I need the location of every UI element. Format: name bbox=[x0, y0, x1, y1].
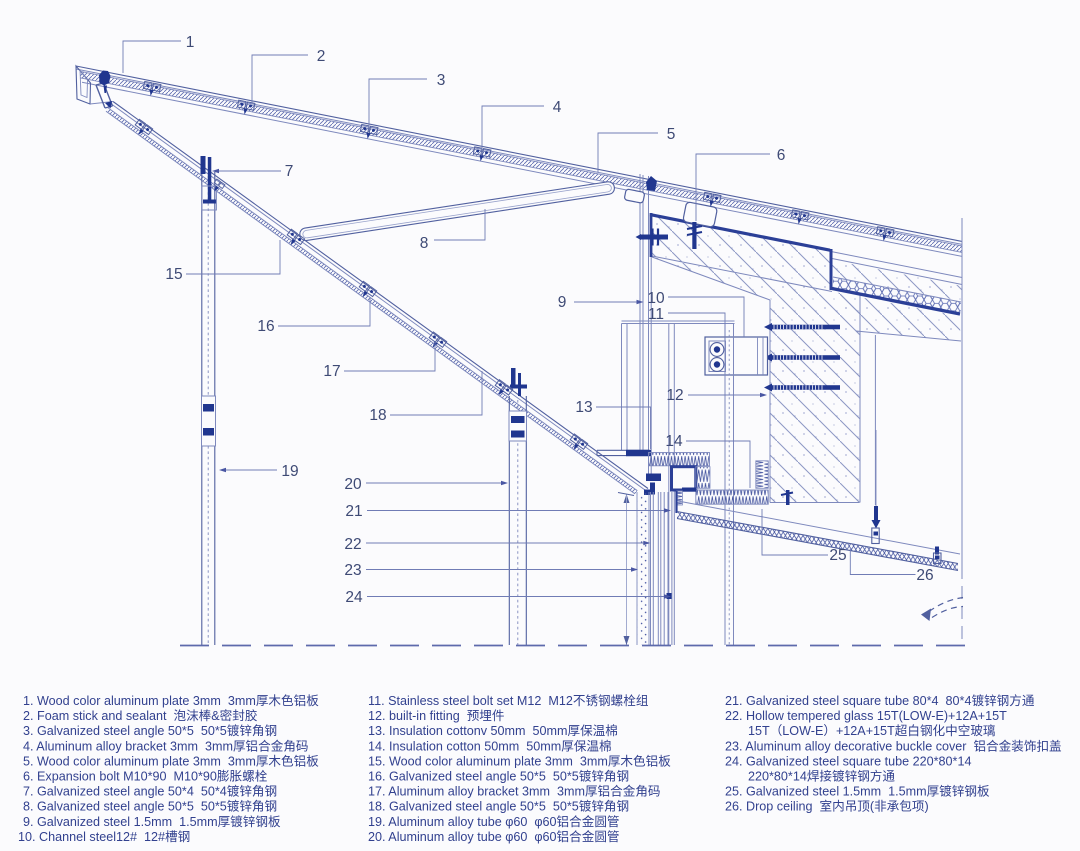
svg-text:12. built-in fitting 预埋件: 12. built-in fitting 预埋件 bbox=[368, 709, 504, 723]
svg-text:7. Galvanized steel angle 50*4: 7. Galvanized steel angle 50*4 50*4镀锌角钢 bbox=[23, 784, 277, 799]
svg-text:22: 22 bbox=[344, 536, 361, 553]
svg-text:9: 9 bbox=[558, 294, 567, 311]
svg-text:16. Galvanized steel angle 50*: 16. Galvanized steel angle 50*5 50*5镀锌角钢 bbox=[368, 769, 629, 784]
svg-text:24. Galvanized steel square tu: 24. Galvanized steel square tube 220*80*… bbox=[725, 754, 971, 768]
svg-text:13: 13 bbox=[575, 399, 592, 416]
svg-text:6. Expansion bolt M10*90 M10*: 6. Expansion bolt M10*90 M10*90膨胀螺栓 bbox=[23, 770, 268, 784]
svg-text:8. Galvanized steel angle 50*5: 8. Galvanized steel angle 50*5 50*5镀锌角钢 bbox=[23, 799, 277, 814]
svg-text:24: 24 bbox=[345, 589, 363, 606]
svg-text:21: 21 bbox=[345, 503, 362, 520]
svg-text:3: 3 bbox=[437, 72, 446, 89]
svg-text:13. Insulation cottonv 50mm 5: 13. Insulation cottonv 50mm 50mm厚保温棉 bbox=[368, 724, 618, 738]
svg-text:11: 11 bbox=[648, 306, 664, 323]
svg-text:2. Foam stick and sealant 泡沫棒: 2. Foam stick and sealant 泡沫棒&密封胶 bbox=[23, 708, 258, 723]
svg-text:20. Aluminum alloy tube φ60 φ: 20. Aluminum alloy tube φ60 φ60铝合金圆管 bbox=[368, 829, 620, 844]
svg-text:4. Aluminum alloy bracket 3mm: 4. Aluminum alloy bracket 3mm 3mm厚铝合金角码 bbox=[23, 738, 309, 753]
svg-text:19. Aluminum alloy tube φ60 φ: 19. Aluminum alloy tube φ60 φ60铝合金圆管 bbox=[368, 814, 620, 829]
svg-text:16: 16 bbox=[257, 318, 274, 335]
svg-text:23. Aluminum alloy decorative: 23. Aluminum alloy decorative buckle cov… bbox=[725, 738, 1062, 753]
svg-text:17: 17 bbox=[323, 363, 340, 380]
svg-text:11. Stainless steel bolt set M: 11. Stainless steel bolt set M12 M12不锈钢螺… bbox=[368, 694, 649, 708]
svg-text:15T（LOW-E）+12A+15T超白钢化中空玻璃: 15T（LOW-E）+12A+15T超白钢化中空玻璃 bbox=[748, 723, 996, 738]
svg-text:10. Channel steel12# 12#槽钢: 10. Channel steel12# 12#槽钢 bbox=[18, 830, 190, 844]
svg-text:2: 2 bbox=[317, 48, 326, 65]
svg-text:18: 18 bbox=[369, 407, 386, 424]
svg-text:6: 6 bbox=[777, 147, 786, 164]
svg-text:8: 8 bbox=[420, 235, 429, 252]
svg-text:18. Galvanized steel angle 50*: 18. Galvanized steel angle 50*5 50*5镀锌角钢 bbox=[368, 799, 629, 814]
svg-text:25: 25 bbox=[829, 547, 846, 564]
svg-text:22. Hollow tempered glass 15T(: 22. Hollow tempered glass 15T(LOW-E)+12A… bbox=[725, 709, 1007, 723]
svg-text:15: 15 bbox=[165, 266, 182, 283]
svg-text:1: 1 bbox=[186, 34, 195, 51]
svg-text:12: 12 bbox=[666, 387, 683, 404]
svg-text:14. Insulation cotton 50mm 50: 14. Insulation cotton 50mm 50mm厚保温棉 bbox=[368, 739, 612, 753]
svg-text:4: 4 bbox=[553, 99, 562, 116]
svg-text:14: 14 bbox=[665, 433, 683, 450]
svg-text:15. Wood color aluminum plate: 15. Wood color aluminum plate 3mm 3mm厚木色… bbox=[368, 753, 671, 768]
svg-text:17. Aluminum alloy bracket 3mm: 17. Aluminum alloy bracket 3mm 3mm厚铝合金角码 bbox=[368, 784, 661, 799]
svg-text:23: 23 bbox=[344, 562, 361, 579]
svg-text:5. Wood color aluminum plate 3: 5. Wood color aluminum plate 3mm 3mm厚木色铝… bbox=[23, 753, 319, 768]
svg-text:26. Drop ceiling 室内吊顶(非承包项): 26. Drop ceiling 室内吊顶(非承包项) bbox=[725, 799, 929, 814]
svg-text:20: 20 bbox=[344, 476, 362, 493]
svg-text:1. Wood color aluminum plate 3: 1. Wood color aluminum plate 3mm 3mm厚木色铝… bbox=[23, 693, 319, 708]
svg-text:21. Galvanized steel square tu: 21. Galvanized steel square tube 80*4 80… bbox=[725, 693, 1035, 708]
svg-text:26: 26 bbox=[916, 567, 933, 584]
svg-text:3. Galvanized steel angle 50*5: 3. Galvanized steel angle 50*5 50*5镀锌角钢 bbox=[23, 723, 277, 738]
svg-text:5: 5 bbox=[667, 126, 676, 143]
svg-text:7: 7 bbox=[285, 163, 294, 180]
svg-text:9. Galvanized steel 1.5mm 1.5: 9. Galvanized steel 1.5mm 1.5mm厚镀锌钢板 bbox=[23, 814, 281, 829]
svg-text:220*80*14焊接镀锌钢方通: 220*80*14焊接镀锌钢方通 bbox=[748, 769, 895, 784]
svg-text:10: 10 bbox=[647, 290, 665, 307]
svg-text:19: 19 bbox=[281, 463, 298, 480]
svg-text:25. Galvanized steel 1.5mm 1.: 25. Galvanized steel 1.5mm 1.5mm厚镀锌钢板 bbox=[725, 784, 990, 799]
